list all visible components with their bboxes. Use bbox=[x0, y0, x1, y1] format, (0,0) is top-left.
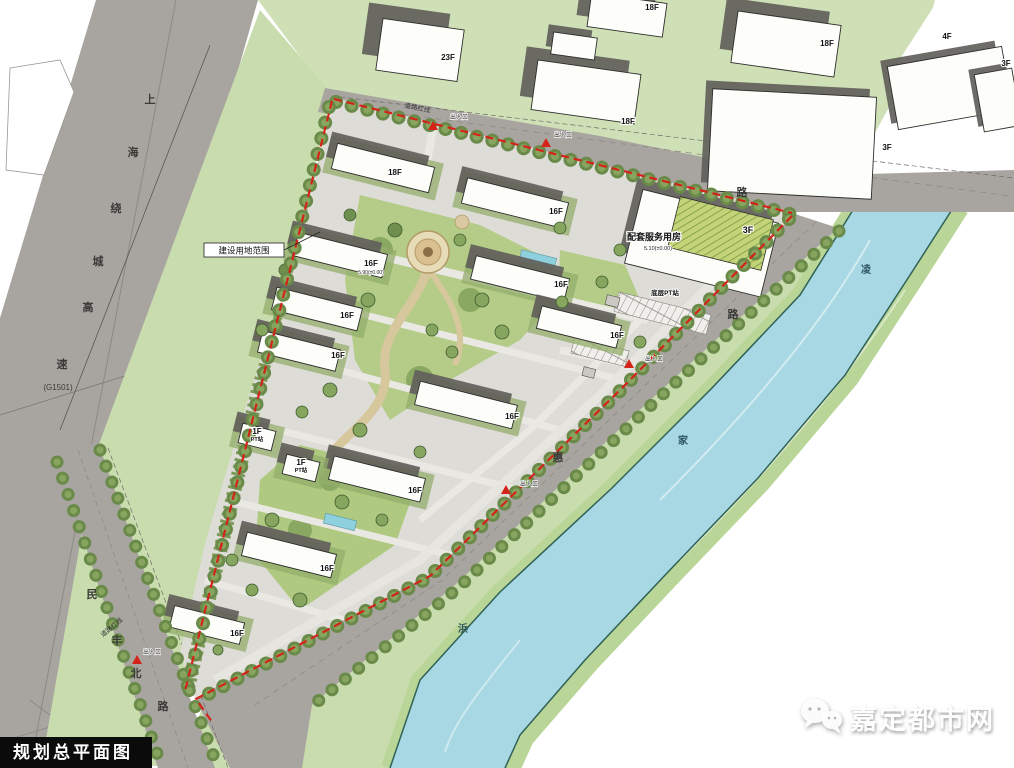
tree-icon bbox=[361, 293, 375, 307]
building-floor-label: 16F bbox=[505, 412, 519, 421]
river-name-char: 凌 bbox=[861, 263, 872, 276]
building-floor-label: 1F bbox=[296, 458, 305, 467]
entrance-label: 出入口 bbox=[450, 113, 468, 121]
tree-icon bbox=[426, 324, 438, 336]
tree-icon bbox=[446, 346, 458, 358]
tree-icon bbox=[296, 406, 308, 418]
tree-icon bbox=[246, 584, 258, 596]
tree-icon bbox=[256, 324, 268, 336]
building-floor-label: 23F bbox=[441, 53, 455, 62]
road-name-char: 丰 bbox=[112, 633, 123, 647]
building-floor-label: 1F bbox=[252, 427, 261, 436]
road-name-char: 高 bbox=[83, 300, 94, 314]
tree-icon bbox=[596, 276, 608, 288]
road-ref-label: (G1501) bbox=[43, 383, 73, 392]
tree-icon bbox=[614, 244, 626, 256]
road-name-char: 民 bbox=[87, 588, 98, 601]
road-name-char: 绕 bbox=[111, 201, 122, 215]
tree-icon bbox=[344, 209, 356, 221]
building-floor-label: 18F bbox=[645, 3, 659, 12]
road-name-char: 上 bbox=[145, 92, 156, 106]
tree-icon bbox=[213, 645, 223, 655]
tree-icon bbox=[634, 336, 646, 348]
building-floor-label: 16F bbox=[554, 280, 568, 289]
building-floor-label: 16F bbox=[610, 331, 624, 340]
road-name-char: 路 bbox=[728, 307, 740, 321]
building-floor-label: 16F bbox=[408, 486, 422, 495]
entrance-label: 出入口 bbox=[143, 648, 161, 656]
building-floor-label: 18F bbox=[388, 168, 402, 177]
service-building-floors: 3F bbox=[743, 225, 754, 235]
building-floor-label: 4F bbox=[942, 32, 951, 41]
tree-icon bbox=[414, 446, 426, 458]
watermark-text: 嘉定都市网 bbox=[850, 698, 995, 737]
context-building bbox=[700, 80, 877, 199]
building-floor-label: 16F bbox=[320, 564, 334, 573]
road-name-char: 速 bbox=[57, 357, 68, 371]
river-name-char: 浜 bbox=[458, 622, 468, 635]
tree-icon bbox=[353, 423, 367, 437]
building-sub-label: PT站 bbox=[251, 435, 264, 443]
service-building-label: 配套服务用房 bbox=[627, 231, 681, 242]
building-floor-label: 16F bbox=[331, 351, 345, 360]
tree-icon bbox=[554, 222, 566, 234]
tree-icon bbox=[323, 383, 337, 397]
building-elevation: 5.90(±0.00) bbox=[358, 270, 384, 276]
road-name-char: 北 bbox=[131, 666, 142, 680]
wechat-bubbles-icon bbox=[798, 696, 844, 738]
tree-icon bbox=[454, 234, 466, 246]
tree-icon bbox=[265, 513, 279, 527]
entrance-label: 出入口 bbox=[645, 355, 663, 363]
road-name-char: 海 bbox=[128, 145, 139, 159]
drawing-title: 规划总平面图 bbox=[0, 737, 152, 768]
context-building bbox=[360, 2, 466, 81]
road-name-char: 路 bbox=[737, 185, 749, 199]
building-floor-label: 16F bbox=[364, 259, 378, 268]
building-floor-label: 3F bbox=[1001, 59, 1010, 68]
tree-icon bbox=[376, 514, 388, 526]
building-floor-label: 18F bbox=[820, 39, 834, 48]
boundary-label-text: 建设用地范围 bbox=[218, 246, 269, 256]
service-building-annex: 底层PT站 bbox=[651, 288, 679, 297]
entrance-label: 出入口 bbox=[520, 480, 538, 488]
tree-icon bbox=[556, 296, 568, 308]
road-name-char: 城 bbox=[93, 254, 104, 268]
tree-icon bbox=[475, 293, 489, 307]
building-floor-label: 16F bbox=[230, 629, 244, 638]
tree-icon bbox=[388, 223, 402, 237]
building-floor-label: 16F bbox=[340, 311, 354, 320]
building-floor-label: 3F bbox=[882, 143, 891, 152]
river-name-char: 家 bbox=[678, 434, 689, 447]
tree-icon bbox=[293, 593, 307, 607]
road-name-char: 路 bbox=[158, 699, 170, 713]
site-plan-canvas: 配套服务用房 3F 5.10(±0.00) 底层PT站 18F16F16F bbox=[0, 0, 1014, 768]
building-footprint bbox=[376, 19, 464, 82]
tree-icon bbox=[226, 554, 238, 566]
tree-icon bbox=[495, 325, 509, 339]
building-sub-label: PT站 bbox=[295, 466, 308, 474]
entrance-label: 出入口 bbox=[554, 131, 572, 139]
service-building-elevation: 5.10(±0.00) bbox=[644, 246, 672, 252]
tree-icon bbox=[335, 495, 349, 509]
watermark: 嘉定都市网 bbox=[798, 696, 995, 738]
building-floor-label: 18F bbox=[621, 117, 635, 126]
building-floor-label: 16F bbox=[549, 207, 563, 216]
building-footprint bbox=[707, 89, 876, 199]
road-name-char: 惠 bbox=[553, 450, 564, 464]
